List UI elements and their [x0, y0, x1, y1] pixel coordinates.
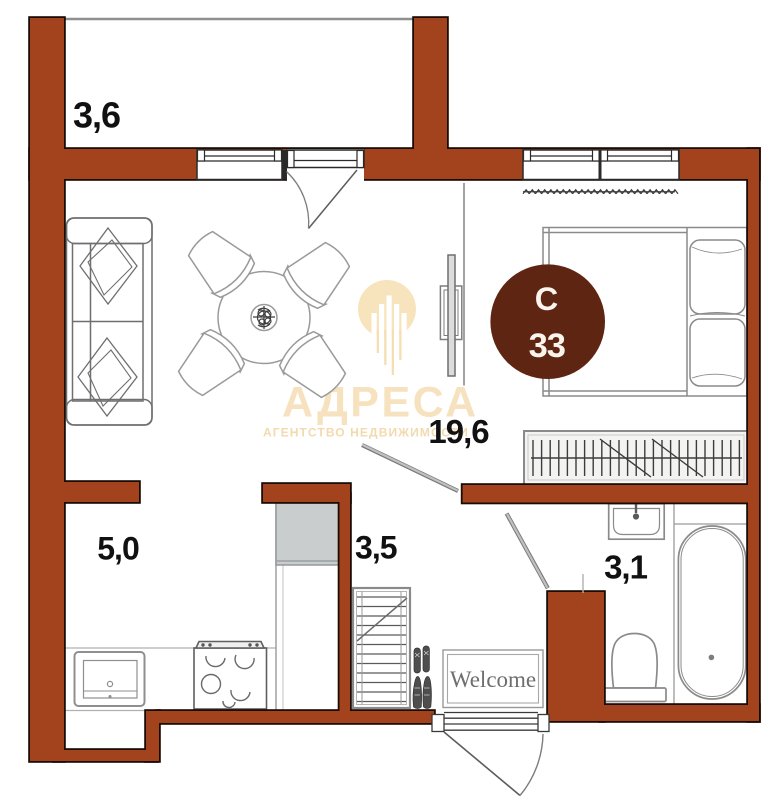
svg-text:3,6: 3,6 [73, 95, 120, 136]
svg-text:C: C [535, 281, 558, 317]
svg-text:5,0: 5,0 [97, 531, 139, 567]
svg-text:3,1: 3,1 [604, 549, 648, 586]
svg-text:19,6: 19,6 [428, 413, 489, 450]
svg-text:33: 33 [529, 327, 565, 365]
svg-text:3,5: 3,5 [355, 530, 397, 566]
svg-text:Welcome: Welcome [450, 667, 536, 692]
